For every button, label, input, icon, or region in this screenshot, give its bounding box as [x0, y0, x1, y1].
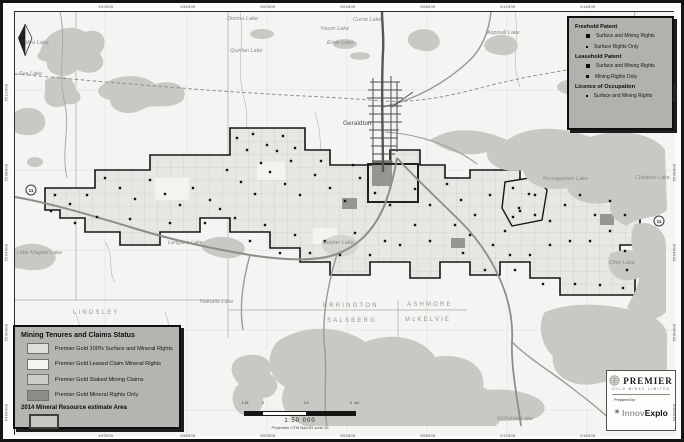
claim-post-marker	[320, 160, 322, 162]
legend-item-label: Surface Rights Only	[594, 44, 638, 50]
claim-post-marker	[429, 240, 431, 242]
coordinate-tick-label: 512000	[500, 433, 515, 438]
legend-item: Surface and Mining Rights	[586, 33, 667, 39]
lake-label: Quinlan Lake	[230, 48, 262, 54]
coordinate-tick-label: 504000	[340, 433, 355, 438]
legend-item: Premier Gold 100% Surface and Mineral Ri…	[27, 343, 173, 354]
highway-number: 11	[29, 188, 34, 193]
claim-post-marker	[609, 230, 611, 232]
coordinate-tick-label: 516000	[580, 4, 595, 9]
claim-post-marker	[329, 187, 331, 189]
resource-estimate-swatch-icon	[29, 414, 59, 429]
claim-post-marker	[609, 200, 611, 202]
claim-post-marker	[509, 254, 511, 256]
claim-post-marker	[192, 187, 194, 189]
claim-post-marker	[284, 183, 286, 185]
small-square-marker-icon	[586, 75, 589, 78]
coordinate-tick-label: 496000	[180, 4, 195, 9]
logo-divider	[612, 394, 670, 395]
claim-post-marker	[460, 199, 462, 201]
legend-item: Surface and Mining Rights	[586, 93, 667, 99]
premier-logo: PREMIER	[607, 375, 675, 386]
resource-estimate-label: 2014 Mineral Resource estimate Area	[21, 405, 173, 411]
claim-post-marker	[534, 194, 536, 196]
lake-label: Yourin Lake	[320, 26, 349, 32]
logo-box: PREMIER GOLD MINES LIMITED Prepared by: …	[606, 370, 676, 431]
lake-label: Clive Lake	[609, 260, 635, 266]
scale-block: 1.25 0 2.5 5 km 1:50 000 Projection UTM …	[225, 401, 375, 430]
claim-post-marker	[219, 208, 221, 210]
claim-post-marker	[624, 214, 626, 216]
lake-label: Currie Lake	[353, 17, 381, 23]
claim-post-marker	[534, 214, 536, 216]
legend-item-label: Premier Gold Leased Claim Mineral Rights	[55, 361, 161, 367]
claim-post-marker	[104, 177, 106, 179]
claim-post-marker	[119, 187, 121, 189]
legend-item-label: Surface and Mining Rights	[594, 93, 653, 99]
claim-post-marker	[514, 269, 516, 271]
tenure-section-title: Licence of Occupation	[575, 84, 667, 90]
claim-post-marker	[254, 193, 256, 195]
coordinate-tick-label: 500000	[260, 433, 275, 438]
claim-post-marker	[429, 204, 431, 206]
claims-legend: Mining Tenures and Claims Status Premier…	[13, 325, 181, 429]
claim-post-marker	[414, 224, 416, 226]
lake-label: Ernie Lake	[327, 40, 353, 46]
projection-note: Projection UTM Nad 83 zone 16	[225, 425, 375, 430]
coordinate-tick-label: 504000	[340, 4, 355, 9]
claim-post-marker	[549, 244, 551, 246]
claim-post-marker	[512, 187, 514, 189]
claim-post-marker	[344, 200, 346, 202]
legend-item-label: Premier Gold Mineral Rights Only	[55, 392, 138, 398]
claim-post-marker	[294, 147, 296, 149]
coordinate-tick-label: 5508000	[3, 164, 8, 182]
lake-label: Dionno Lake	[227, 16, 258, 22]
claim-post-marker	[149, 179, 151, 181]
claim-post-marker	[492, 244, 494, 246]
coordinate-tick-label: 516000	[580, 433, 595, 438]
claim-post-marker	[474, 214, 476, 216]
dot-marker-icon	[586, 46, 588, 48]
claims-swatch-icon	[27, 374, 49, 385]
lake-label: McKelvie Lake	[497, 416, 533, 422]
claim-post-marker	[252, 133, 254, 135]
lake-label: Lengane Lake	[168, 240, 203, 246]
coordinate-tick-label: 500000	[260, 4, 275, 9]
scale-tick: 0	[262, 401, 264, 405]
claim-post-marker	[290, 160, 292, 162]
coordinate-tick-label: 496000	[180, 433, 195, 438]
scale-tick: 5	[350, 401, 352, 405]
claims-swatch-icon	[27, 343, 49, 354]
lake-label: Eva Lake	[19, 71, 42, 77]
square-marker-icon	[586, 64, 590, 68]
claim-post-marker	[339, 254, 341, 256]
claim-post-marker	[374, 192, 376, 194]
claim-post-marker	[369, 254, 371, 256]
claim-post-marker	[314, 174, 316, 176]
claim-post-marker	[622, 287, 624, 289]
township-label: ASHMORE	[407, 302, 453, 308]
scale-bar	[244, 411, 356, 416]
lake-label: Mosher Lake	[322, 240, 354, 246]
claim-post-marker	[569, 240, 571, 242]
claim-post-marker	[518, 207, 520, 209]
claim-post-marker	[164, 193, 166, 195]
lake-label: Aspinall Lake	[486, 30, 520, 36]
legend-item-label: Surface and Mining Rights	[596, 63, 655, 69]
legend-item-label: Mining Rights Only	[595, 74, 637, 80]
highway-number: 11	[657, 219, 662, 224]
coordinate-tick-label: 508000	[420, 433, 435, 438]
explo-text: Explo	[645, 408, 668, 418]
premier-wordmark: PREMIER	[623, 376, 673, 386]
scale-tick: 1.25	[242, 401, 249, 405]
claim-post-marker	[169, 222, 171, 224]
claim-post-marker	[309, 252, 311, 254]
township-label: ERRINGTON	[323, 303, 379, 309]
claim-post-marker	[469, 234, 471, 236]
claim-post-marker	[209, 199, 211, 201]
legend-item: Premier Gold Mineral Rights Only	[27, 390, 173, 401]
legend-item-label: Surface and Mining Rights	[596, 33, 655, 39]
coordinate-tick-label: 5496000	[3, 404, 8, 422]
lake-label: Crabtree Lake	[635, 175, 670, 181]
coordinate-tick-label: 512000	[500, 4, 515, 9]
prepared-by-label: Prepared by:	[614, 398, 675, 402]
claim-post-marker	[384, 240, 386, 242]
claim-post-marker	[134, 198, 136, 200]
claim-post-marker	[389, 204, 391, 206]
claim-post-marker	[489, 194, 491, 196]
claim-post-marker	[589, 240, 591, 242]
claim-post-marker	[204, 222, 206, 224]
tenure-legend: Freehold Patent Surface and Mining Right…	[567, 16, 674, 130]
claim-post-marker	[260, 162, 262, 164]
coordinate-tick-label: 5512000	[671, 84, 676, 102]
claim-post-marker	[354, 232, 356, 234]
scale-bar-segment	[306, 412, 355, 415]
coordinate-tick-label: 5504000	[3, 244, 8, 262]
claim-post-marker	[504, 230, 506, 232]
claim-post-marker	[264, 224, 266, 226]
innovexplo-logo: ✳ InnovExplo	[607, 403, 675, 421]
coordinate-tick-label: 5508000	[671, 164, 676, 182]
scale-ratio: 1:50 000	[225, 418, 375, 424]
tenure-section-title: Leasehold Patent	[575, 54, 667, 60]
scale-bar-segment	[245, 412, 263, 415]
claim-post-marker	[236, 137, 238, 139]
legend-item: Mining Rights Only	[586, 74, 667, 80]
claim-post-marker	[599, 284, 601, 286]
legend-item-label: Premier Gold Staked Mining Claims	[55, 377, 144, 383]
premier-subtitle: GOLD MINES LIMITED	[607, 387, 675, 391]
lake-label: Little Magnet Lake	[17, 250, 62, 256]
tenure-section-title: Freehold Patent	[575, 24, 667, 30]
coordinate-tick-label: 5504000	[671, 244, 676, 262]
claim-post-marker	[234, 217, 236, 219]
claim-post-marker	[414, 188, 416, 190]
globe-icon	[609, 375, 620, 386]
claim-post-marker	[226, 169, 228, 171]
claim-post-marker	[519, 210, 521, 212]
claim-post-marker	[484, 269, 486, 271]
claim-post-marker	[446, 183, 448, 185]
claim-post-marker	[240, 181, 242, 183]
claim-post-marker	[294, 234, 296, 236]
claims-swatch-icon	[27, 390, 49, 401]
claim-post-marker	[549, 220, 551, 222]
claim-post-marker	[462, 252, 464, 254]
claim-post-marker	[276, 150, 278, 152]
coordinate-tick-label: 492000	[98, 4, 113, 9]
map-sheet: 1111 Dionno LakeQuinlan LakeYourin LakeC…	[0, 0, 684, 442]
claim-post-marker	[266, 144, 268, 146]
claim-post-marker	[129, 218, 131, 220]
legend-item: Premier Gold Leased Claim Mineral Rights	[27, 359, 173, 370]
claim-post-marker	[179, 204, 181, 206]
claim-post-marker	[574, 283, 576, 285]
claim-post-marker	[246, 149, 248, 151]
claim-post-marker	[542, 283, 544, 285]
claims-legend-title: Mining Tenures and Claims Status	[21, 332, 173, 339]
claim-post-marker	[299, 194, 301, 196]
claim-post-marker	[50, 210, 52, 212]
scale-tick: 2.5	[304, 401, 309, 405]
claim-post-marker	[579, 194, 581, 196]
claim-post-marker	[624, 250, 626, 252]
legend-item: Surface and Mining Rights	[586, 63, 667, 69]
claim-post-marker	[69, 203, 71, 205]
claim-post-marker	[269, 171, 271, 173]
scale-bar-ticks: 1.25 0 2.5 5 km	[245, 401, 355, 405]
innov-text: Innov	[622, 408, 645, 418]
claim-post-marker	[512, 216, 514, 218]
claim-post-marker	[359, 177, 361, 179]
claim-post-marker	[594, 214, 596, 216]
claim-post-marker	[352, 164, 354, 166]
coordinate-tick-label: 5512000	[3, 84, 8, 102]
township-label: LINDSLEY	[73, 310, 120, 316]
lake-label: Kenogamisis Lake	[543, 176, 588, 182]
claim-post-marker	[279, 252, 281, 254]
coordinate-tick-label: 5500000	[3, 324, 8, 342]
claim-post-marker	[626, 269, 628, 271]
claim-post-marker	[74, 222, 76, 224]
town-label: Geraldton	[343, 120, 372, 127]
scale-bar-segment	[263, 412, 306, 415]
township-label: McKELVIE	[405, 317, 451, 323]
claim-post-marker	[564, 204, 566, 206]
legend-item-label: Premier Gold 100% Surface and Mineral Ri…	[55, 346, 173, 352]
legend-item: Surface Rights Only	[586, 44, 667, 50]
square-marker-icon	[586, 34, 590, 38]
claim-post-marker	[529, 254, 531, 256]
scale-unit: km	[355, 401, 360, 405]
innovexplo-wordmark: InnovExplo	[622, 403, 668, 421]
gear-icon: ✳	[614, 409, 620, 416]
township-label: SALSBERG	[327, 318, 377, 324]
claim-post-marker	[86, 194, 88, 196]
legend-item: Premier Gold Staked Mining Claims	[27, 374, 173, 385]
coordinate-tick-label: 5496000	[671, 404, 676, 422]
small-dot-marker-icon	[586, 95, 588, 97]
claim-post-marker	[454, 224, 456, 226]
claim-post-marker	[96, 216, 98, 218]
coordinate-tick-label: 492000	[98, 433, 113, 438]
claim-post-marker	[249, 240, 251, 242]
claim-post-marker	[282, 135, 284, 137]
coordinate-tick-label: 5500000	[671, 324, 676, 342]
claim-post-marker	[54, 194, 56, 196]
claims-swatch-icon	[27, 359, 49, 370]
claim-post-marker	[399, 244, 401, 246]
coordinate-tick-label: 508000	[420, 4, 435, 9]
claim-post-marker	[528, 193, 530, 195]
lake-label: Nakotila Lake	[200, 299, 233, 305]
